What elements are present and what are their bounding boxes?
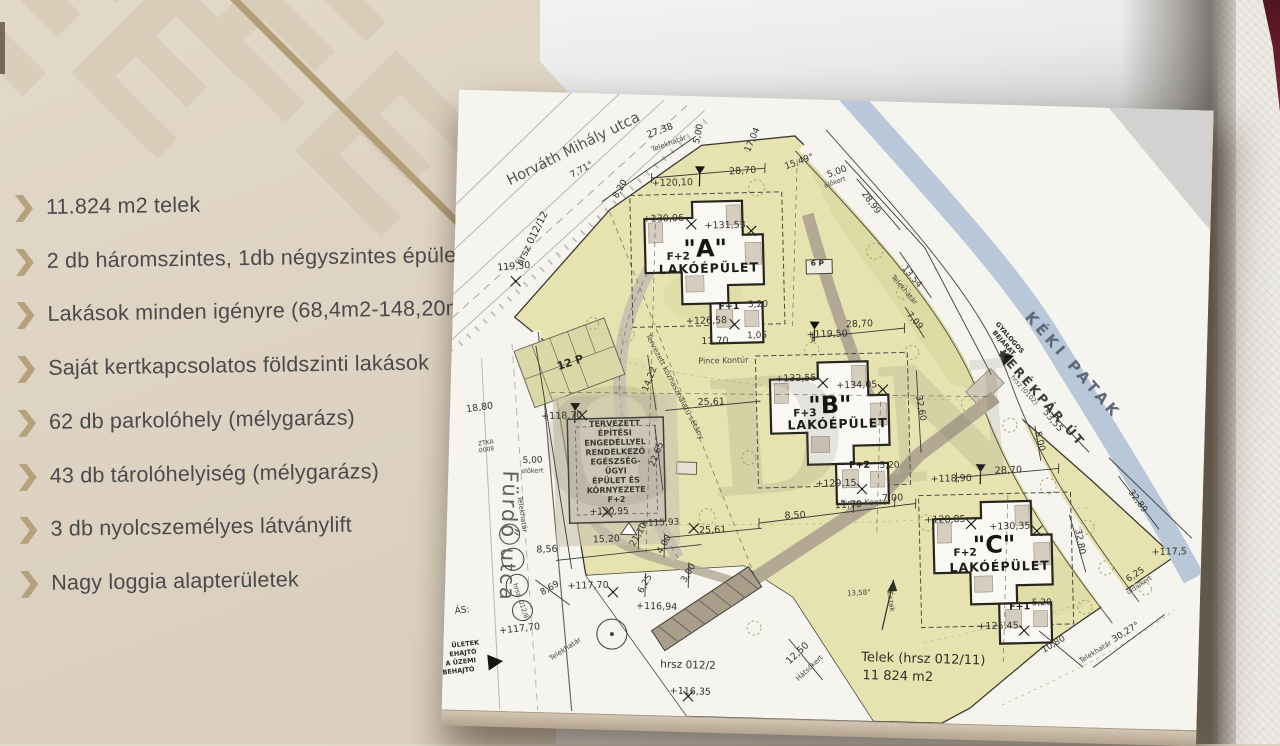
plan-label: 25,61 (698, 396, 725, 408)
plan-label: 15,20 (593, 533, 621, 545)
bullet-item: ❯62 db parkolóhely (mélygarázs) (16, 404, 486, 435)
plan-label: +125,45 (977, 620, 1018, 632)
plan-label: +129,15 (815, 478, 856, 490)
chevron-right-icon: ❯ (14, 410, 39, 432)
bullet-text: Saját kertkapcsolatos földszinti lakások (48, 351, 429, 381)
plan-label: F+2 (953, 547, 977, 560)
plan-label: +126,58 (686, 315, 727, 327)
bullet-text: 43 db tárolóhelyiség (mélygarázs) (50, 459, 380, 488)
chevron-right-icon: ❯ (12, 249, 37, 271)
bullet-list: ❯11.824 m2 telek❯2 db háromszintes, 1db … (13, 189, 489, 625)
plan-label: +118,90 (930, 473, 971, 485)
plan-label: F+1 (718, 301, 739, 313)
screenshot-root: { "slide": { "colors": {"background":"#d… (0, 0, 1280, 744)
plan-label: 25,61 (699, 525, 726, 537)
plan-label: +119,50 (806, 328, 847, 340)
plan-label: 11,70 (701, 336, 728, 348)
plan-label: Pince Kontúr (698, 355, 749, 365)
plan-label: +117,5 (1152, 546, 1187, 558)
bullet-item: ❯11.824 m2 telek (13, 189, 483, 220)
plan-label: +134,05 (836, 379, 877, 391)
plan-label: 11,70 (835, 499, 863, 511)
bullet-text: 3 db nyolcszemélyes látványlift (50, 513, 352, 542)
plan-label: 5,20 (1032, 598, 1053, 608)
chevron-right-icon: ❯ (14, 356, 39, 378)
plan-label: 8,50 (784, 510, 806, 522)
plan-label: 11 824 m2 (862, 668, 933, 685)
bullet-text: 11.824 m2 telek (46, 193, 201, 220)
bullet-item: ❯43 db tárolóhelyiség (mélygarázs) (17, 457, 487, 488)
plan-label: 7,00 (882, 492, 904, 504)
plan-label: 28,70 (729, 165, 757, 178)
bullet-text: Nagy loggia alapterületek (51, 567, 299, 595)
chevron-right-icon: ❯ (16, 517, 41, 539)
plan-label: 1,05 (747, 331, 767, 341)
chevron-right-icon: ❯ (15, 464, 40, 486)
plan-label: +120,10 (652, 177, 693, 189)
plan-label: 8,56 (536, 544, 558, 556)
chevron-right-icon: ❯ (17, 571, 42, 593)
bullet-item: ❯Nagy loggia alapterületek (18, 565, 488, 596)
bullet-item: ❯3 db nyolcszemélyes látványlift (18, 511, 488, 542)
plan-label: +128,85 (924, 514, 965, 526)
plan-label: 5,20 (879, 461, 900, 471)
bullet-item: ❯Saját kertkapcsolatos földszinti lakáso… (15, 350, 485, 381)
plan-label: +118,70 (541, 410, 582, 422)
plan-label: 28,70 (846, 318, 874, 330)
chevron-right-icon: ❯ (13, 302, 38, 324)
plan-label: LAKÓÉPÜLET (787, 415, 888, 432)
plan-label: LAKÓÉPÜLET (659, 259, 760, 276)
plan-label: +115,93 (640, 518, 679, 530)
chevron-right-icon: ❯ (11, 195, 36, 217)
plan-label: előkert (521, 465, 544, 475)
plan-label: 5,00 (522, 456, 543, 466)
plan-label: hrsz 012/2 (660, 658, 716, 672)
bullet-item: ❯2 db háromszintes, 1db négyszintes épül… (14, 242, 484, 273)
plan-label: +116,35 (670, 686, 711, 698)
plan-label: +130,95 (590, 506, 629, 517)
plan-label: +116,94 (636, 601, 677, 613)
plan-label: F+1 (1009, 601, 1030, 613)
bullet-text: Lakások minden igényre (68,4m2-148,20m2) (47, 296, 483, 327)
plan-label: +117,70 (567, 580, 608, 592)
site-plan-board: GDN Horváth Mihály utcahrsz 012/12Fürdő … (441, 90, 1213, 746)
site-plan-svg: GDN Horváth Mihály utcahrsz 012/12Fürdő … (442, 90, 1214, 731)
plan-label: F+2 (849, 460, 870, 472)
plan-label: 6 P (811, 258, 825, 267)
plan-label: +132,55 (775, 373, 816, 385)
plan-label: LAKÓÉPÜLET (949, 558, 1050, 575)
bullet-text: 2 db háromszintes, 1db négyszintes épüle… (47, 243, 463, 274)
plan-label: +130,06 (643, 213, 684, 225)
plan-label: 28,70 (995, 465, 1023, 477)
plan-label: 13,58° (847, 588, 871, 597)
plan-label: 5,20 (748, 300, 769, 310)
bullet-text: 62 db parkolóhely (mélygarázs) (49, 405, 355, 434)
edge-sliver (0, 22, 5, 74)
bullet-item: ❯Lakások minden igényre (68,4m2-148,20m2… (15, 296, 485, 327)
plan-label: "C" (972, 530, 1015, 559)
plan-label: +131,53 (704, 220, 745, 232)
